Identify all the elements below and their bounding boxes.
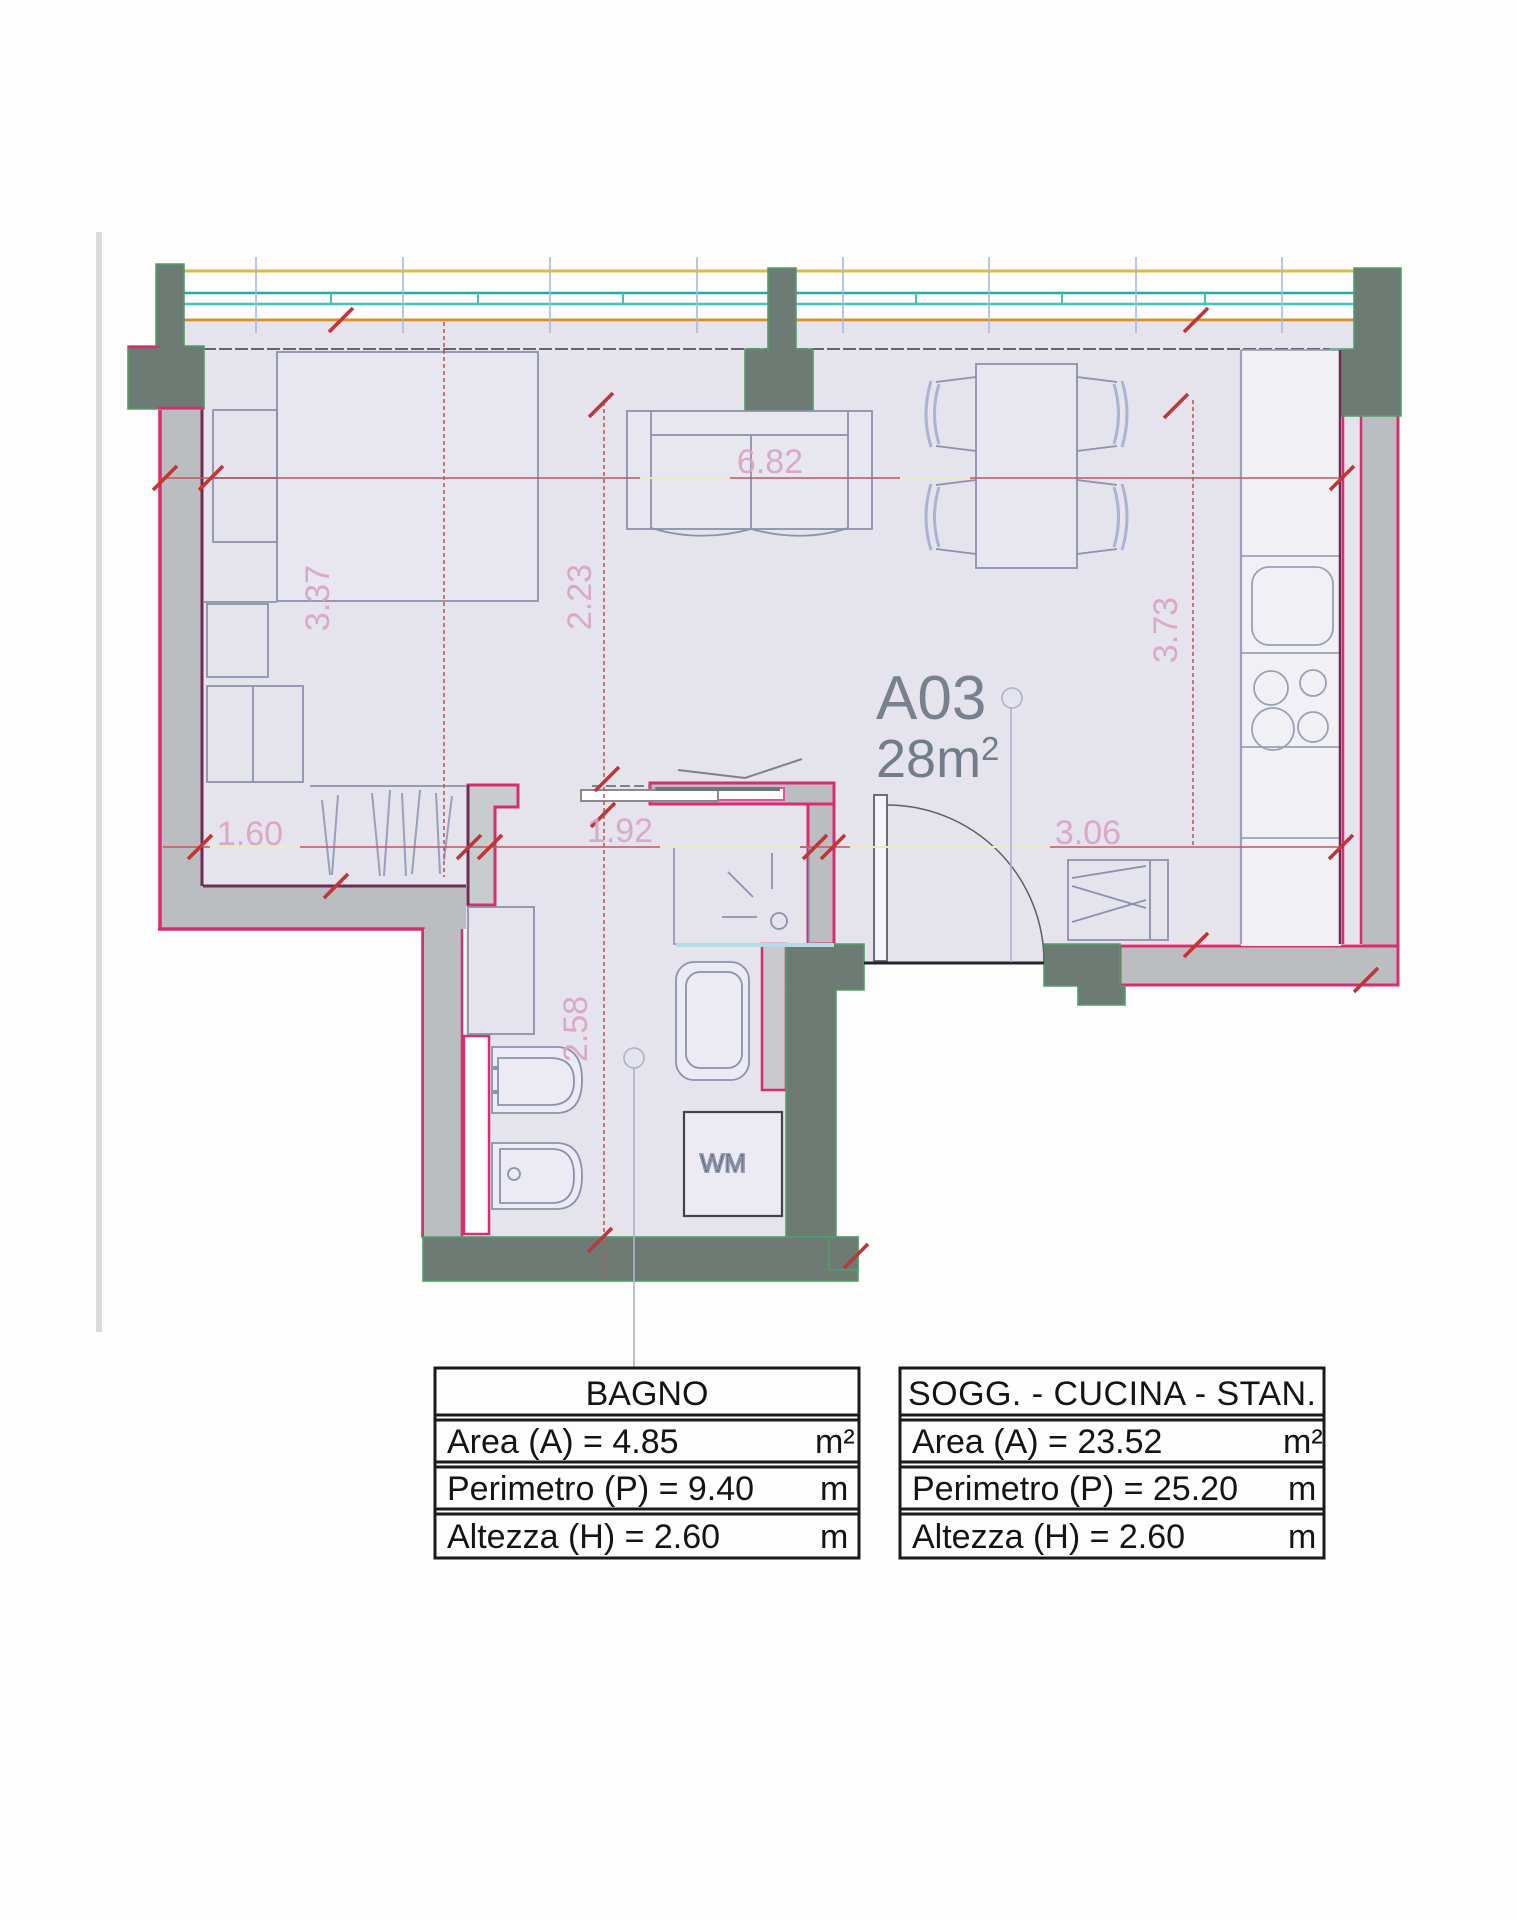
svg-text:2.58: 2.58 [557, 996, 595, 1062]
svg-text:m²: m² [815, 1423, 855, 1461]
svg-text:WM: WM [700, 1148, 746, 1178]
svg-text:1.92: 1.92 [587, 812, 653, 850]
svg-text:3.73: 3.73 [1147, 597, 1185, 663]
svg-text:m: m [1288, 1470, 1316, 1508]
svg-text:m: m [820, 1518, 848, 1556]
svg-text:Altezza (H) = 2.60: Altezza (H) = 2.60 [912, 1518, 1185, 1556]
svg-text:3.06: 3.06 [1055, 814, 1121, 852]
svg-text:28m2: 28m2 [876, 729, 999, 789]
svg-text:Altezza (H) = 2.60: Altezza (H) = 2.60 [447, 1518, 720, 1556]
svg-text:6.82: 6.82 [737, 443, 803, 481]
svg-text:SOGG. - CUCINA - STAN.: SOGG. - CUCINA - STAN. [908, 1375, 1316, 1413]
svg-text:m: m [820, 1470, 848, 1508]
svg-text:1.60: 1.60 [217, 815, 283, 853]
svg-text:2.23: 2.23 [561, 564, 599, 630]
svg-text:Area (A) = 4.85: Area (A) = 4.85 [447, 1423, 679, 1461]
svg-text:m: m [1288, 1518, 1316, 1556]
svg-text:BAGNO: BAGNO [586, 1375, 709, 1413]
svg-text:A03: A03 [876, 664, 986, 733]
svg-text:3.37: 3.37 [299, 565, 337, 631]
svg-text:Perimetro (P) = 9.40: Perimetro (P) = 9.40 [447, 1470, 754, 1508]
svg-text:m²: m² [1283, 1423, 1323, 1461]
svg-text:Area (A) = 23.52: Area (A) = 23.52 [912, 1423, 1162, 1461]
svg-text:Perimetro (P) = 25.20: Perimetro (P) = 25.20 [912, 1470, 1238, 1508]
